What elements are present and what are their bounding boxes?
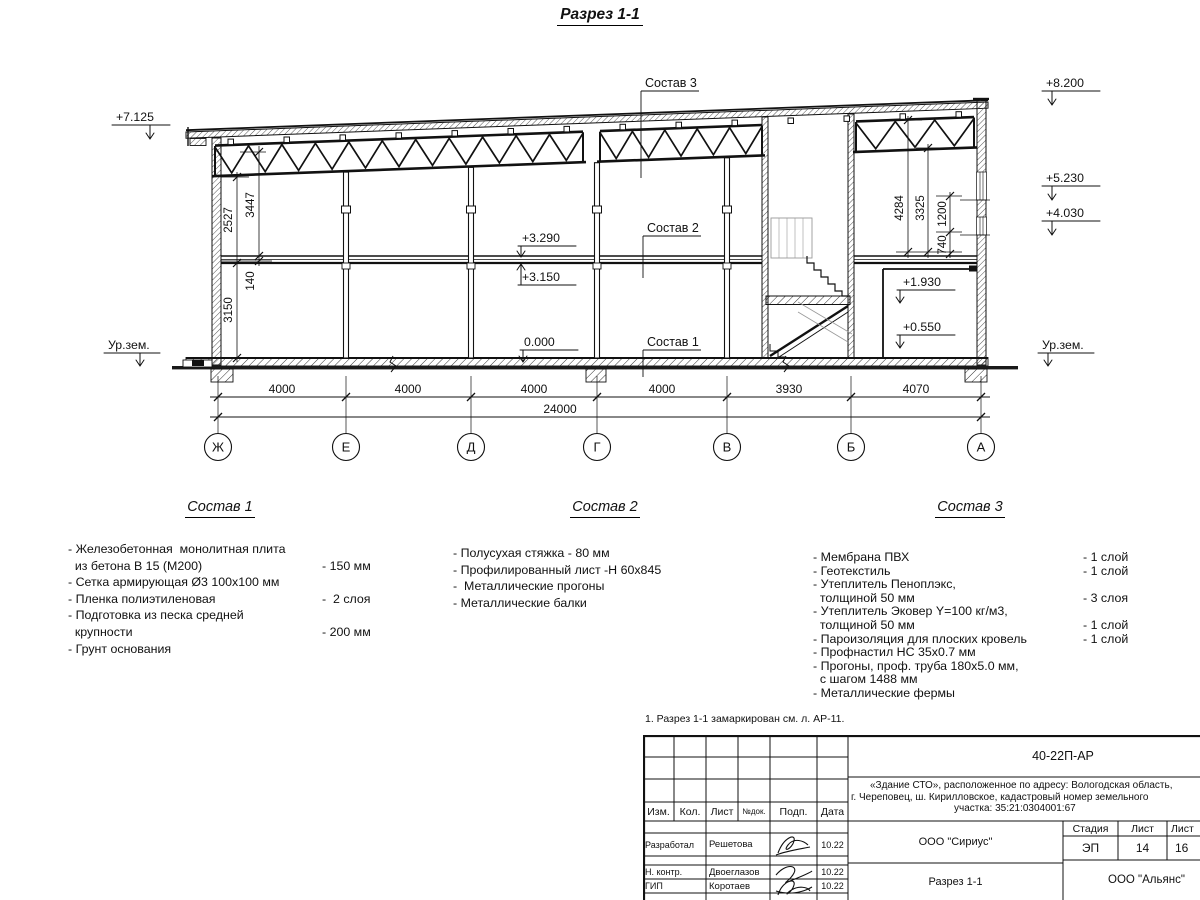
axis-b: Б	[847, 440, 856, 455]
stage-value: ЭП	[1063, 836, 1118, 860]
spec-item: крупности- 200 мм	[68, 624, 380, 641]
spec-item: - Мембрана ПВХ- 1 слой	[813, 551, 1135, 565]
spec-title: Состав 3	[935, 499, 1004, 518]
axis-a: А	[977, 440, 986, 455]
stair-upper-flight	[807, 256, 850, 296]
spec-item: - Профнастил НС 35х0.7 мм	[813, 646, 1135, 660]
spec-item: - Полусухая стяжка - 80 мм	[453, 545, 765, 562]
svg-text:0.000: 0.000	[524, 335, 555, 349]
spec-section-3: Состав 3 - Мембрана ПВХ- 1 слой- Геотекс…	[805, 499, 1135, 701]
col-izm: Изм.	[643, 802, 674, 821]
spec-item: - Железобетонная монолитная плита	[68, 541, 380, 558]
spec-item: - Утеплитель Эковер Y=100 кг/м3,	[813, 605, 1135, 619]
stair-lower-flight	[770, 306, 848, 356]
col-ndok: №док.	[738, 802, 770, 821]
axis-d: Д	[467, 440, 476, 455]
svg-text:3447: 3447	[245, 192, 257, 218]
axis-v: В	[723, 440, 732, 455]
foundation-pads	[211, 369, 987, 382]
spec-section-2: Состав 2 - Полусухая стяжка - 80 мм- Про…	[445, 499, 765, 611]
spec-item: - Пароизоляция для плоских кровель- 1 сл…	[813, 633, 1135, 647]
signature	[770, 831, 817, 858]
col-kol: Кол.	[674, 802, 706, 821]
dim-4070: 4070	[903, 382, 930, 396]
section-drawing: Состав 3 Состав 2 Состав 1 +7.125 Ур.зем…	[0, 0, 1200, 478]
wall-left	[212, 138, 221, 365]
dim-4000-3: 4000	[521, 382, 548, 396]
svg-text:+1.930: +1.930	[903, 275, 941, 289]
sheets-label: Лист	[1171, 821, 1200, 836]
spec-item: - Металлические прогоны	[453, 578, 765, 595]
svg-text:+4.030: +4.030	[1046, 206, 1084, 220]
col-podp: Подп.	[770, 802, 817, 821]
sheet-number: 14	[1118, 836, 1167, 860]
col-list: Лист	[706, 802, 738, 821]
dimension-lines: 4000 4000 4000 4000 3930 4070 24000	[210, 376, 990, 434]
title-block: Изм. Кол. Лист №док. Подп. Дата Разработ…	[643, 735, 1200, 900]
vertical-dims-right: 4284 3325 1200 740	[894, 116, 962, 258]
leader-sostav3: Состав 3	[645, 76, 697, 90]
signature	[770, 861, 817, 899]
row-role: Н. контр.	[645, 865, 706, 879]
spec-item: - Металлические балки	[453, 595, 765, 612]
spec-item: - Профилированный лист -Н 60х845	[453, 562, 765, 579]
svg-text:Ур.зем.: Ур.зем.	[1042, 338, 1084, 352]
spec-item: - Утеплитель Пеноплэкс,	[813, 578, 1135, 592]
sheets-total: 16	[1175, 836, 1200, 860]
row-date: 10.22	[817, 833, 848, 856]
spec-list: - Мембрана ПВХ- 1 слой- Геотекстиль- 1 с…	[805, 551, 1135, 701]
svg-text:3150: 3150	[223, 297, 235, 323]
spec-list: - Железобетонная монолитная плита из бет…	[60, 541, 380, 657]
svg-text:+0.550: +0.550	[903, 320, 941, 334]
spec-item: - Грунт основания	[68, 641, 380, 658]
spec-item: - Пленка полиэтиленовая- 2 слоя	[68, 591, 380, 608]
vertical-dims-left: 2527 3447 3150 140	[221, 146, 272, 362]
spec-section-1: Состав 1 - Железобетонная монолитная пли…	[60, 499, 380, 657]
svg-text:+3.290: +3.290	[522, 231, 560, 245]
spec-title: Состав 1	[185, 499, 254, 518]
spec-item: из бетона В 15 (М200)- 150 мм	[68, 558, 380, 575]
dim-total: 24000	[543, 402, 577, 416]
svg-text:140: 140	[245, 271, 257, 290]
leader-sostav2: Состав 2	[647, 221, 699, 235]
axis-g: Г	[593, 440, 600, 455]
spec-item: толщиной 50 мм- 1 слой	[813, 619, 1135, 633]
row-name: Коротаев	[709, 879, 770, 893]
spec-item: - Подготовка из песка средней	[68, 607, 380, 624]
dim-4000-1: 4000	[269, 382, 296, 396]
svg-text:2527: 2527	[223, 207, 235, 233]
sheet: { "title": "Разрез 1-1", "drawing": { "e…	[0, 0, 1200, 900]
svg-text:+3.150: +3.150	[522, 270, 560, 284]
spec-item: - Металлические фермы	[813, 687, 1135, 701]
sheet-title: Разрез 1-1	[848, 863, 1063, 900]
dim-4000-4: 4000	[649, 382, 676, 396]
drawing-note: 1. Разрез 1-1 замаркирован см. л. АР-11.	[645, 713, 844, 725]
stair-landing	[766, 296, 850, 305]
svg-text:+8.200: +8.200	[1046, 76, 1084, 90]
svg-text:740: 740	[937, 235, 949, 254]
row-role: ГИП	[645, 879, 706, 893]
svg-text:3325: 3325	[915, 195, 927, 221]
axis-e: Е	[342, 440, 351, 455]
spec-item: толщиной 50 мм- 3 слоя	[813, 592, 1135, 606]
project-address-line: участка: 35:21:0304001:67	[954, 803, 1076, 814]
spec-item: - Геотекстиль- 1 слой	[813, 565, 1135, 579]
stage-label: Стадия	[1063, 821, 1118, 836]
svg-text:+5.230: +5.230	[1046, 171, 1084, 185]
spec-list: - Полусухая стяжка - 80 мм- Профилирован…	[445, 545, 765, 611]
project-address-line: «Здание СТО», расположенное по адресу: В…	[870, 780, 1172, 791]
company-name: ООО "Альянс"	[1108, 860, 1200, 900]
dim-3930: 3930	[776, 382, 803, 396]
columns	[342, 158, 732, 358]
col-data: Дата	[817, 802, 848, 821]
spec-title: Состав 2	[570, 499, 639, 518]
spec-item: - Прогоны, проф. труба 180х5.0 мм,	[813, 660, 1135, 674]
row-name: Решетова	[709, 833, 770, 856]
doc-number: 40-22П-АР	[848, 735, 1200, 777]
row-date: 10.22	[817, 879, 848, 893]
row-date: 10.22	[817, 865, 848, 879]
row-name: Двоеглазов	[709, 865, 770, 879]
dim-4000-2: 4000	[395, 382, 422, 396]
svg-text:1200: 1200	[937, 201, 949, 227]
axis-bubbles: Ж Е Д Г В Б А	[205, 434, 995, 461]
spec-item: с шагом 1488 мм	[813, 673, 1135, 687]
svg-text:4284: 4284	[894, 195, 906, 221]
stair-core	[762, 114, 854, 359]
svg-text:+7.125: +7.125	[116, 110, 154, 124]
spec-item: - Сетка армирующая Ø3 100х100 мм	[68, 574, 380, 591]
project-address-line: г. Череповец, ш. Кирилловское, кадастров…	[851, 792, 1148, 803]
leader-sostav1: Состав 1	[647, 335, 699, 349]
sheet-label: Лист	[1118, 821, 1167, 836]
row-role: Разработал	[645, 833, 706, 856]
svg-text:Ур.зем.: Ур.зем.	[108, 338, 150, 352]
org-name: ООО "Сириус"	[848, 821, 1063, 863]
axis-zh: Ж	[212, 440, 224, 455]
